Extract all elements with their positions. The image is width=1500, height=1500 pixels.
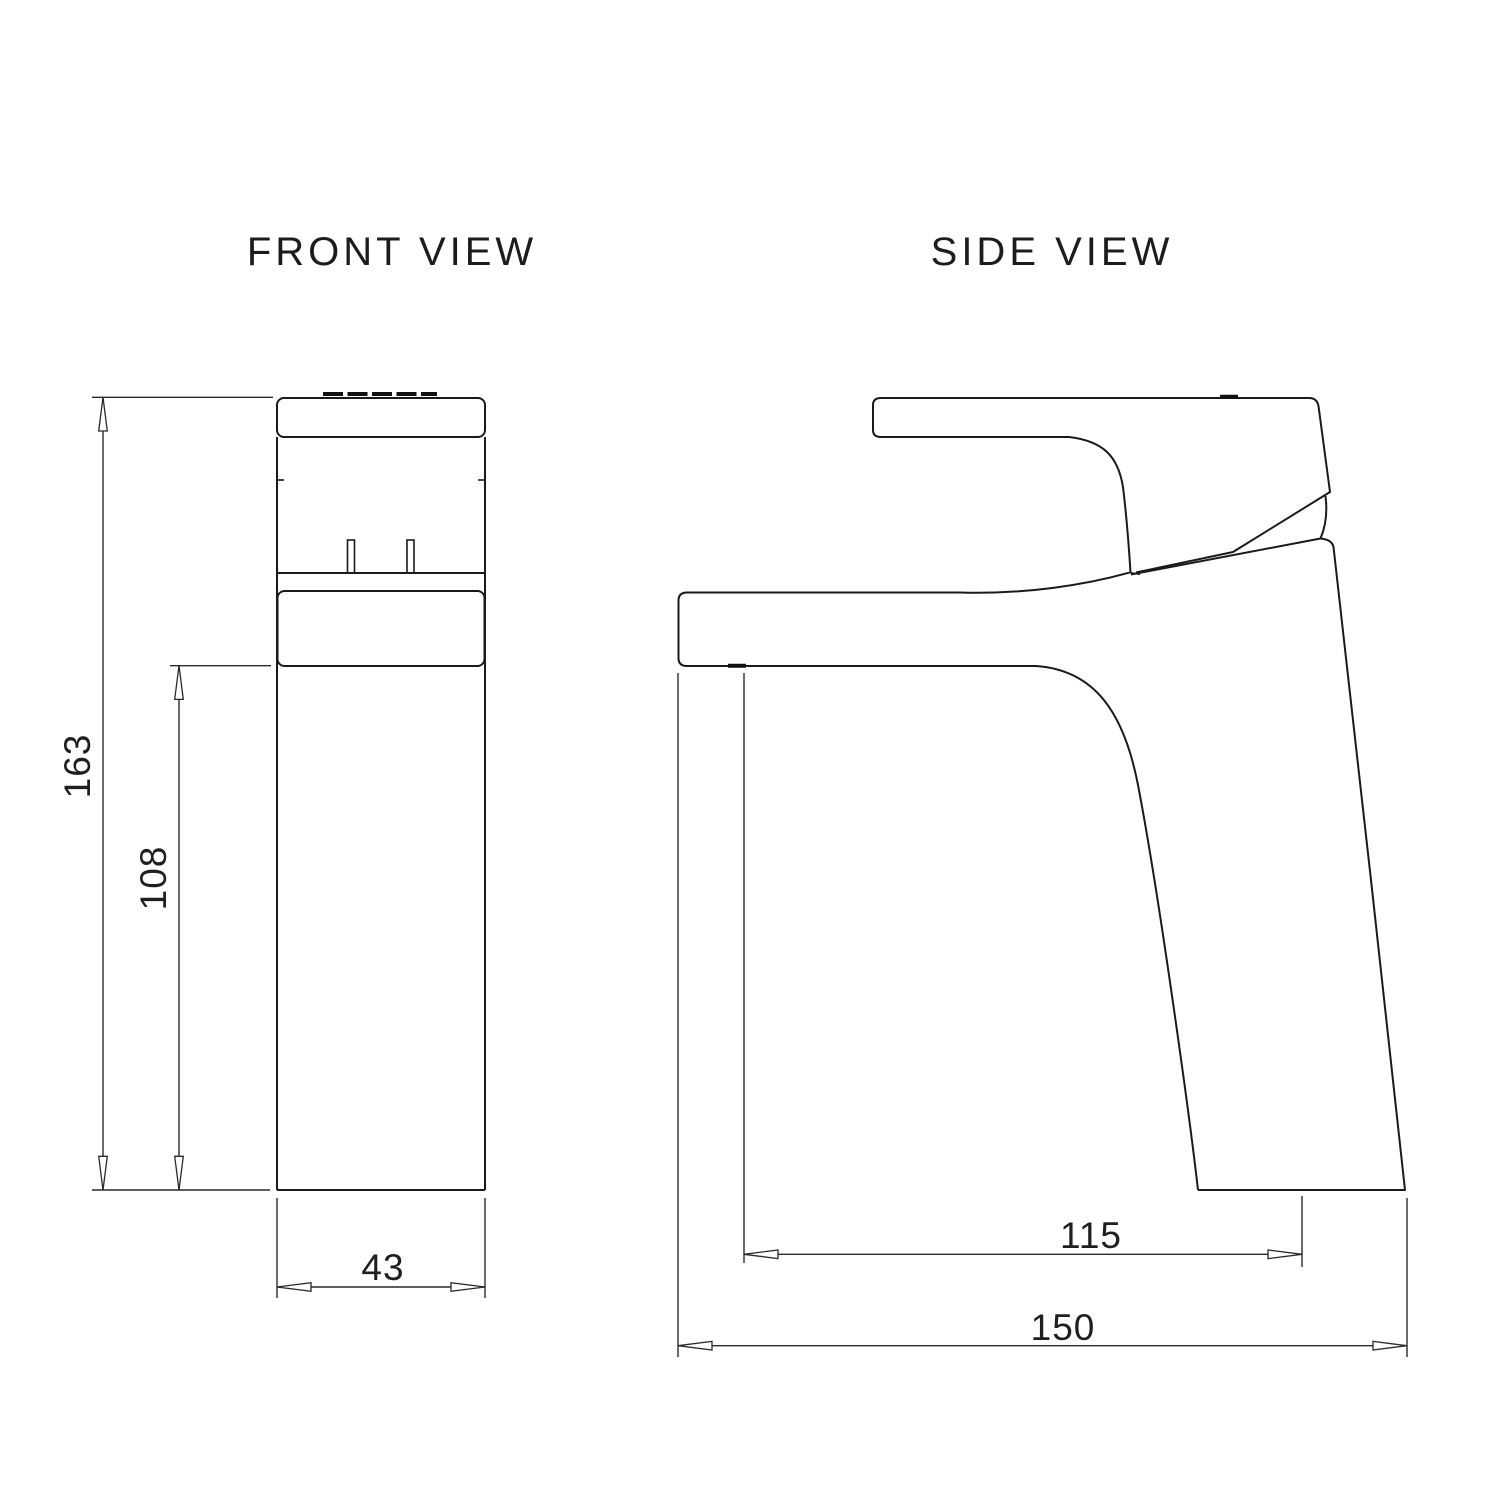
spout-underside-and-front-edge bbox=[687, 666, 1198, 1190]
spout-front-face bbox=[278, 591, 485, 666]
body-back-and-base bbox=[1198, 539, 1405, 1191]
arrow-right-icon bbox=[1268, 1250, 1302, 1259]
side-view-dimensions: 115 150 bbox=[678, 673, 1407, 1357]
right-pin bbox=[407, 540, 414, 573]
side-view-drawing bbox=[679, 397, 1406, 1190]
arrow-right-icon bbox=[451, 1283, 485, 1292]
arrow-down-icon bbox=[175, 1156, 184, 1190]
dimension-total-depth: 150 bbox=[678, 1307, 1407, 1350]
front-view-drawing bbox=[277, 394, 485, 1190]
dimension-body-width: 43 bbox=[277, 1247, 485, 1291]
top-plate-sliver bbox=[1131, 539, 1321, 575]
spout-top-outline bbox=[679, 573, 1130, 666]
left-pin bbox=[348, 540, 355, 573]
arrow-up-icon bbox=[175, 666, 184, 700]
front-view-title: FRONT VIEW bbox=[247, 230, 537, 274]
faucet-technical-drawing: FRONT VIEW SIDE VIEW bbox=[0, 0, 1500, 1500]
side-view-title: SIDE VIEW bbox=[931, 230, 1174, 274]
handle-lever-outline bbox=[873, 398, 1330, 573]
cartridge-dome-arc bbox=[1321, 496, 1327, 539]
arrow-right-icon bbox=[1373, 1341, 1407, 1350]
dimension-total-height: 163 bbox=[57, 397, 107, 1190]
dimension-spout-height: 108 bbox=[133, 666, 183, 1190]
dim-label-163: 163 bbox=[57, 734, 98, 799]
dim-label-43: 43 bbox=[361, 1247, 404, 1288]
arrow-up-icon bbox=[99, 397, 108, 431]
arrow-left-icon bbox=[678, 1341, 712, 1350]
dim-label-150: 150 bbox=[1031, 1307, 1096, 1348]
handle-front-face bbox=[277, 398, 485, 437]
arrow-left-icon bbox=[744, 1250, 778, 1259]
arrow-down-icon bbox=[99, 1156, 108, 1190]
technical-drawing-page: FRONT VIEW SIDE VIEW bbox=[0, 0, 1500, 1500]
handle-neck-outline bbox=[873, 430, 1131, 573]
arrow-left-icon bbox=[277, 1283, 311, 1292]
dim-label-108: 108 bbox=[133, 846, 174, 911]
front-view-dimensions: 163 108 43 bbox=[57, 397, 485, 1298]
dimension-spout-reach: 115 bbox=[744, 1215, 1302, 1259]
dim-label-115: 115 bbox=[1060, 1215, 1122, 1256]
